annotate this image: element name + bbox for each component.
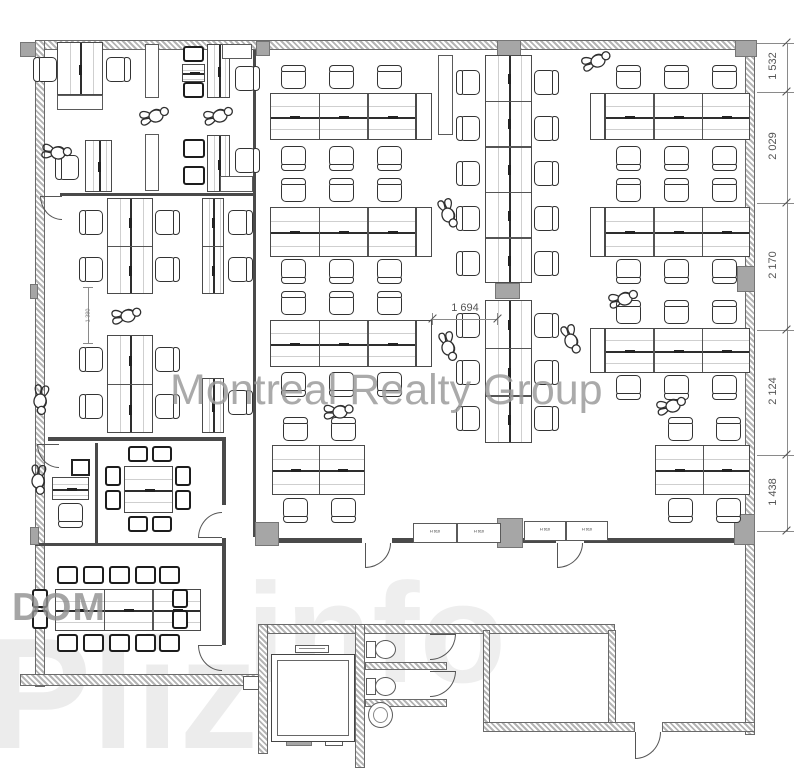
desk-detail	[508, 368, 511, 378]
floor-plan-canvas: Pliz info Montreal Realty Group DOM 1 53…	[0, 0, 795, 768]
office-chair	[534, 360, 555, 385]
desk-detail	[606, 246, 749, 247]
shelf-cabinet	[220, 176, 253, 192]
wall	[258, 624, 615, 634]
desk-detail	[79, 65, 82, 75]
bench-desk	[270, 207, 416, 257]
dimension-label-right-2: 2 029	[767, 116, 779, 176]
desk-detail	[290, 343, 300, 346]
visitor-chair	[83, 634, 104, 652]
office-chair	[712, 259, 737, 280]
desk-detail	[98, 162, 101, 172]
visitor-chair	[172, 610, 188, 629]
dimension-tick	[757, 455, 794, 456]
bench-desk	[107, 335, 153, 433]
door-arc	[635, 732, 661, 759]
office-chair	[329, 372, 354, 393]
column	[20, 42, 36, 57]
toilet	[375, 677, 396, 696]
office-chair	[331, 498, 356, 519]
column	[255, 522, 279, 546]
desk-detail	[508, 256, 511, 266]
desk-detail	[702, 329, 703, 372]
column	[30, 527, 39, 545]
cabinet-label: H 910	[465, 530, 492, 534]
desk-detail	[291, 469, 301, 472]
office-chair	[459, 406, 480, 431]
shelf-cabinet	[438, 55, 453, 135]
office-chair	[377, 294, 402, 315]
desk-detail	[214, 136, 215, 191]
office-chair	[82, 347, 103, 372]
bench-desk	[605, 328, 750, 373]
desk-detail	[183, 79, 204, 80]
desk-end-cap	[590, 93, 605, 140]
office-chair	[155, 210, 176, 235]
wall	[608, 630, 616, 730]
desk-detail	[606, 129, 749, 130]
office-chair	[377, 146, 402, 167]
desk-detail	[271, 129, 415, 130]
desk-detail	[220, 379, 221, 432]
door-arc	[198, 645, 222, 671]
office-chair	[534, 161, 555, 186]
desk-detail	[508, 211, 511, 221]
desk-detail	[271, 246, 415, 247]
dimension-label-right-1: 1 532	[767, 36, 779, 96]
desk-detail	[67, 488, 77, 491]
dimension-label-center: 1 694	[432, 302, 498, 314]
office-chair	[712, 181, 737, 202]
office-chair	[668, 498, 693, 519]
bench-desk	[85, 140, 112, 192]
visitor-chair	[159, 634, 180, 652]
dimension-line	[787, 43, 788, 531]
desk-detail	[367, 94, 368, 139]
visitor-chair	[109, 566, 130, 584]
visitor-chair	[32, 610, 48, 629]
desk-detail	[625, 116, 635, 119]
dimension-tick	[757, 330, 794, 331]
visitor-chair	[175, 466, 191, 486]
door-arc	[365, 543, 391, 568]
sink-basin	[373, 707, 388, 723]
office-chair	[329, 146, 354, 167]
desk-detail	[129, 218, 132, 228]
dimension-line	[432, 319, 498, 320]
visitor-chair	[105, 490, 121, 510]
office-chair	[58, 503, 83, 524]
visitor-chair	[183, 139, 205, 158]
office-chair	[534, 406, 555, 431]
desk-detail	[486, 101, 531, 102]
office-chair	[534, 313, 555, 338]
office-chair	[155, 347, 176, 372]
visitor-chair	[57, 634, 78, 652]
office-chair	[664, 68, 689, 89]
office-chair	[281, 181, 306, 202]
desk-detail	[271, 333, 415, 334]
visitor-chair	[128, 516, 148, 532]
desk-detail	[108, 246, 152, 247]
column	[737, 266, 755, 292]
shelf-cabinet	[145, 134, 159, 191]
desk-detail	[129, 356, 132, 366]
office-chair	[281, 68, 306, 89]
dimension-tick	[83, 287, 93, 288]
office-chair	[281, 259, 306, 280]
office-chair	[155, 257, 176, 282]
office-cabinet	[71, 459, 90, 476]
desk-detail	[53, 495, 88, 496]
desk-detail	[653, 94, 654, 139]
desk-detail	[674, 350, 684, 353]
desk-detail	[93, 141, 94, 191]
cabinet-label: H 910	[532, 528, 558, 532]
column	[256, 41, 270, 56]
desk-detail	[319, 321, 320, 366]
office-chair	[155, 394, 176, 419]
office-chair	[377, 68, 402, 89]
desk-detail	[367, 321, 368, 366]
desk-detail	[212, 266, 215, 276]
bench-desk	[107, 198, 153, 294]
person-figure	[24, 381, 56, 421]
elevator-rail	[295, 645, 329, 653]
desk-detail	[722, 469, 732, 472]
office-chair	[712, 375, 737, 396]
bench-desk	[202, 198, 224, 294]
bench-desk	[485, 55, 532, 283]
desk-detail	[674, 116, 684, 119]
dimension-label-right-4: 2 124	[767, 361, 779, 421]
wall	[20, 674, 263, 686]
elevator-car	[277, 660, 349, 736]
desk-detail	[508, 165, 511, 175]
office-chair	[616, 375, 641, 396]
desk-detail	[70, 43, 71, 94]
visitor-chair	[32, 589, 48, 608]
desk-detail	[486, 146, 531, 147]
person-figure	[109, 301, 147, 330]
office-chair	[664, 303, 689, 324]
person-figure	[200, 100, 240, 132]
visitor-chair	[183, 166, 205, 185]
desk-detail	[212, 402, 215, 412]
bench-desk	[57, 42, 103, 95]
desk-detail	[124, 609, 134, 612]
office-chair	[668, 420, 693, 441]
desk-detail	[190, 72, 200, 75]
desk-detail	[722, 116, 732, 119]
desk-detail	[203, 246, 223, 247]
office-chair	[377, 372, 402, 393]
office-chair	[712, 68, 737, 89]
desk-detail	[271, 106, 415, 107]
desk-detail	[606, 363, 749, 364]
office-chair	[534, 206, 555, 231]
desk-detail	[53, 484, 88, 485]
plan-geometry	[0, 0, 795, 768]
bench-desk	[124, 466, 173, 513]
desk-detail	[339, 231, 349, 234]
visitor-chair	[128, 446, 148, 462]
desk-end-cap	[416, 320, 432, 367]
office-chair	[459, 116, 480, 141]
desk-detail	[702, 94, 703, 139]
office-chair	[283, 498, 308, 519]
desk-detail	[388, 116, 398, 119]
desk-detail	[218, 67, 221, 77]
office-chair	[712, 146, 737, 167]
desk-detail	[108, 384, 152, 385]
bench-desk	[270, 93, 416, 140]
visitor-chair	[83, 566, 104, 584]
desk-detail	[498, 56, 499, 282]
person-figure	[554, 320, 588, 362]
desk-detail	[290, 116, 300, 119]
person-figure	[322, 399, 358, 425]
desk-detail	[486, 395, 531, 396]
office-chair	[82, 257, 103, 282]
office-chair	[235, 66, 256, 91]
wall	[662, 722, 755, 732]
wall	[355, 624, 365, 768]
toilet	[375, 640, 396, 659]
desk-detail	[125, 479, 172, 480]
desk-detail	[209, 379, 210, 432]
office-chair	[616, 181, 641, 202]
desk-detail	[486, 348, 531, 349]
visitor-chair	[183, 46, 204, 62]
office-chair	[616, 259, 641, 280]
desk-detail	[106, 141, 107, 191]
visitor-chair	[152, 446, 172, 462]
desk-detail	[339, 116, 349, 119]
desk-detail	[508, 74, 511, 84]
office-chair	[459, 313, 480, 338]
desk-detail	[722, 350, 732, 353]
desk-detail	[129, 266, 132, 276]
wall	[483, 630, 490, 730]
desk-detail	[653, 208, 654, 256]
desk-detail	[508, 415, 511, 425]
desk-detail	[145, 489, 155, 492]
bench-desk	[655, 445, 750, 495]
wall	[253, 50, 256, 537]
office-chair	[716, 420, 741, 441]
office-chair	[106, 57, 127, 82]
office-chair	[281, 372, 306, 393]
column	[30, 284, 38, 299]
dimension-tick	[757, 203, 794, 204]
shelf-cabinet	[57, 95, 103, 110]
door-arc	[430, 671, 456, 697]
wall	[60, 193, 255, 196]
office-chair	[283, 420, 308, 441]
desk-detail	[214, 45, 215, 97]
bench-desk	[605, 93, 750, 140]
wall	[483, 722, 635, 732]
office-chair	[228, 257, 249, 282]
bench-desk	[182, 64, 205, 82]
desk-detail	[508, 320, 511, 330]
desk-detail	[338, 469, 348, 472]
dimension-label-right-5: 1 438	[767, 462, 779, 522]
desk-detail	[625, 231, 635, 234]
desk-end-cap	[416, 207, 432, 257]
door-arc	[198, 512, 222, 538]
office-chair	[716, 498, 741, 519]
column	[735, 40, 757, 57]
office-chair	[281, 294, 306, 315]
desk-detail	[75, 609, 85, 612]
wall	[365, 662, 447, 670]
visitor-chair	[57, 566, 78, 584]
office-chair	[664, 181, 689, 202]
wall	[48, 437, 224, 441]
office-chair	[82, 394, 103, 419]
desk-detail	[319, 446, 320, 494]
desk-detail	[486, 192, 531, 193]
column	[495, 283, 520, 299]
bench-desk	[52, 477, 89, 500]
wall	[258, 624, 268, 754]
cabinet-label: H 910	[421, 530, 448, 534]
desk-detail	[508, 119, 511, 129]
desk-detail	[183, 70, 204, 71]
office-chair	[459, 70, 480, 95]
bench-desk	[605, 207, 750, 257]
desk-end-cap	[590, 328, 605, 373]
wall	[95, 443, 98, 543]
desk-detail	[104, 590, 105, 630]
visitor-chair	[105, 466, 121, 486]
elevator-rail-line	[299, 648, 325, 649]
desk-detail	[271, 356, 415, 357]
office-chair	[616, 146, 641, 167]
office-chair	[534, 70, 555, 95]
visitor-chair	[183, 82, 204, 98]
wall	[35, 543, 222, 546]
desk-detail	[93, 43, 94, 94]
office-chair	[329, 181, 354, 202]
person-figure	[23, 462, 52, 500]
desk-detail	[606, 340, 749, 341]
cabinet-label: H 910	[574, 528, 600, 532]
office-chair	[36, 57, 57, 82]
desk-detail	[702, 208, 703, 256]
bench-desk	[270, 320, 416, 367]
desk-detail	[218, 160, 221, 170]
desk-detail	[125, 502, 172, 503]
desk-detail	[674, 231, 684, 234]
office-chair	[329, 68, 354, 89]
desk-detail	[319, 94, 320, 139]
visitor-chair	[135, 634, 156, 652]
office-chair	[459, 251, 480, 276]
wall	[222, 538, 226, 645]
desk-detail	[271, 221, 415, 222]
desk-detail	[388, 231, 398, 234]
dimension-tick	[757, 531, 794, 532]
wall	[35, 40, 757, 50]
desk-detail	[388, 343, 398, 346]
office-chair	[377, 181, 402, 202]
shelf-cabinet	[145, 44, 159, 98]
office-chair	[534, 251, 555, 276]
office-chair	[228, 210, 249, 235]
office-chair	[377, 259, 402, 280]
bench-desk	[272, 445, 365, 495]
visitor-chair	[159, 566, 180, 584]
desk-detail	[521, 301, 522, 442]
desk-detail	[606, 221, 749, 222]
desk-detail	[319, 208, 320, 256]
shelf-cabinet	[222, 44, 252, 59]
desk-end-cap	[590, 207, 605, 257]
office-chair	[712, 303, 737, 324]
desk-detail	[722, 231, 732, 234]
desk-detail	[703, 446, 704, 494]
desk-detail	[521, 56, 522, 282]
office-chair	[235, 148, 256, 173]
dimension-label-left: 1 380	[85, 301, 91, 330]
person-figure	[136, 100, 176, 132]
visitor-chair	[135, 566, 156, 584]
visitor-chair	[152, 516, 172, 532]
desk-detail	[152, 590, 153, 630]
desk-detail	[606, 106, 749, 107]
wall	[222, 437, 226, 505]
office-chair	[228, 390, 249, 415]
office-chair	[534, 116, 555, 141]
desk-end-cap	[416, 93, 432, 140]
desk-detail	[486, 237, 531, 238]
person-figure	[431, 194, 465, 236]
office-chair	[664, 146, 689, 167]
office-chair	[82, 210, 103, 235]
desk-detail	[653, 329, 654, 372]
office-chair	[616, 68, 641, 89]
office-chair	[329, 259, 354, 280]
office-chair	[459, 161, 480, 186]
door-arc	[557, 543, 583, 568]
wall	[745, 40, 755, 735]
desk-detail	[339, 343, 349, 346]
door-arc	[430, 634, 456, 660]
desk-detail	[290, 231, 300, 234]
dimension-label-right-3: 2 170	[767, 235, 779, 295]
visitor-chair	[109, 634, 130, 652]
desk-detail	[625, 350, 635, 353]
desk-detail	[675, 469, 685, 472]
bench-desk	[202, 378, 224, 433]
office-chair	[664, 259, 689, 280]
dimension-tick	[83, 343, 93, 344]
office-chair	[329, 294, 354, 315]
desk-detail	[212, 218, 215, 228]
visitor-chair	[172, 589, 188, 608]
shelf-cabinet	[243, 676, 259, 690]
wall	[584, 538, 745, 543]
visitor-chair	[175, 490, 191, 510]
office-chair	[281, 146, 306, 167]
desk-detail	[129, 405, 132, 415]
desk-detail	[367, 208, 368, 256]
